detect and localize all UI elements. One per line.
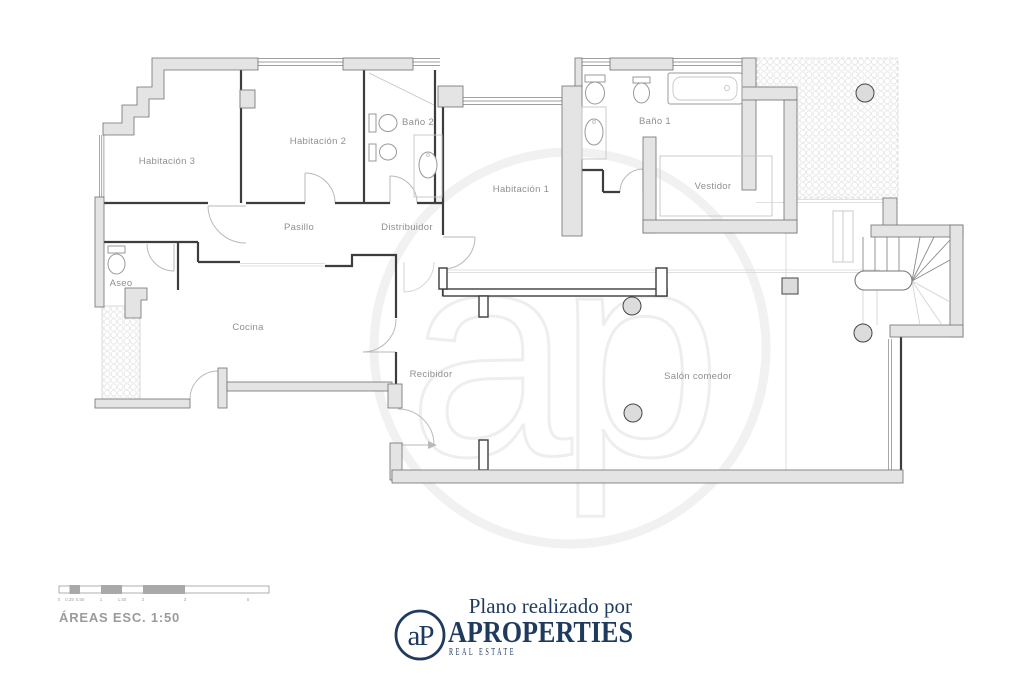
- brand-monogram-icon: aP: [408, 620, 434, 652]
- scale-tick-2: 2: [142, 597, 145, 602]
- room-label-cocina: Cocina: [232, 322, 264, 333]
- wall-post-right: [656, 268, 667, 296]
- room-label-recibidor: Recibidor: [410, 369, 453, 380]
- room-label-pasillo: Pasillo: [284, 222, 314, 233]
- scale-tick-025: 0.25: [65, 597, 74, 602]
- scale-tick-1: 1: [100, 597, 103, 602]
- wall-hab1-salon: [443, 289, 667, 296]
- room-label-vestidor: Vestidor: [695, 181, 732, 192]
- room-label-aseo: Aseo: [110, 278, 133, 289]
- gallery-hatch: [102, 306, 140, 402]
- scale-tick-5: 5: [247, 597, 250, 602]
- bano1-bidet: [633, 77, 650, 103]
- wall-post-left: [439, 268, 447, 289]
- door-habitacion-2: [305, 173, 335, 203]
- room-label-habitacion-2: Habitación 2: [290, 136, 346, 147]
- door-habitacion-3: [208, 206, 246, 243]
- floor-plan-svg: ap: [0, 0, 1019, 677]
- scale-bar: 0 0.25 0.50 1 1.50 2 3 5 ÁREAS ESC. 1:50: [58, 585, 269, 625]
- brand-subname: REAL ESTATE: [449, 647, 516, 658]
- staircase: [855, 198, 963, 337]
- bano2-bidet: [369, 144, 397, 161]
- terrace-hatch: [756, 58, 898, 203]
- scale-tick-3: 3: [184, 597, 187, 602]
- aproperties-logo: Plano realizado por aP APROPERTIES REAL …: [396, 594, 633, 659]
- bano2-toilet: [369, 114, 397, 132]
- door-cocina-gallery: [190, 371, 218, 399]
- scale-tick-150: 1.50: [118, 597, 127, 602]
- stub-recibidor-top: [479, 296, 488, 317]
- bano1-bathtub: [668, 73, 742, 104]
- aseo-toilet: [108, 246, 125, 274]
- room-label-habitacion-3: Habitación 3: [139, 156, 195, 167]
- bano1-toilet: [585, 75, 605, 104]
- bano2-shower-screen: [369, 73, 434, 105]
- door-aseo: [147, 244, 174, 271]
- scale-tick-0: 0: [58, 597, 61, 602]
- room-label-bano-1: Baño 1: [639, 116, 671, 127]
- room-label-habitacion-1: Habitación 1: [493, 184, 549, 195]
- salon-cabinet: [833, 211, 853, 262]
- room-label-salon: Salón comedor: [664, 371, 732, 382]
- stair-handrail: [855, 271, 912, 290]
- scale-title: ÁREAS ESC. 1:50: [59, 610, 180, 625]
- scale-tick-050: 0.50: [76, 597, 85, 602]
- room-label-bano-2: Baño 2: [402, 117, 434, 128]
- floor-plan-page: ap: [0, 0, 1019, 677]
- stub-recibidor-bottom: [479, 440, 488, 470]
- brand-name: APROPERTIES: [448, 614, 633, 649]
- room-label-distribuidor: Distribuidor: [381, 222, 433, 233]
